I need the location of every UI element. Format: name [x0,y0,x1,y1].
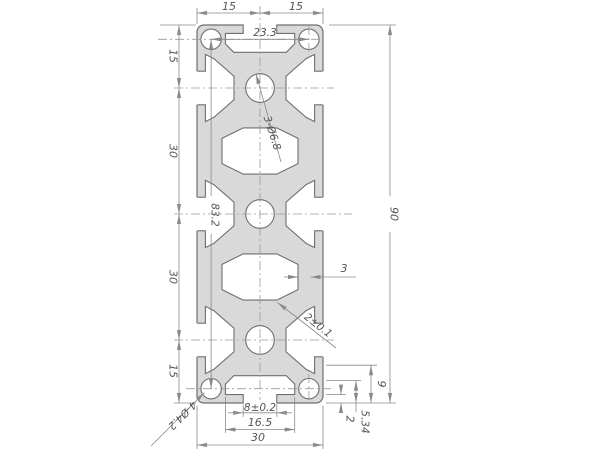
dim-slot-inner-width: 16.5 [248,416,273,429]
dim-slot-depth: 9 [375,381,388,388]
dim-left-seg3: 30 [167,270,180,284]
dim-corner-hole-pitch: 23.3 [253,27,276,39]
dim-cavity-depth: 5.34 [359,410,371,433]
callout-corner-holes: 4-Ø4.2 [165,398,199,432]
dim-corner-hole-span: 83.2 [209,203,221,227]
dim-slot-opening: 8±0.2 [244,402,276,414]
technical-drawing: 15 15 23.3 15 30 30 15 83.2 90 9 5.34 2 … [0,0,600,450]
dim-wall-thickness: 3 [341,262,348,275]
dim-top-right: 15 [289,0,303,13]
dim-top-left: 15 [222,0,236,13]
dim-left-seg2: 30 [167,144,180,158]
dim-overall-width: 30 [251,431,265,444]
dim-overall-height: 90 [388,207,401,221]
drawing-page: 15 15 23.3 15 30 30 15 83.2 90 9 5.34 2 … [0,0,600,450]
dim-left-seg1: 15 [167,49,180,63]
dim-left-seg4: 15 [167,364,180,378]
dim-lip-thickness: 2 [344,416,357,423]
